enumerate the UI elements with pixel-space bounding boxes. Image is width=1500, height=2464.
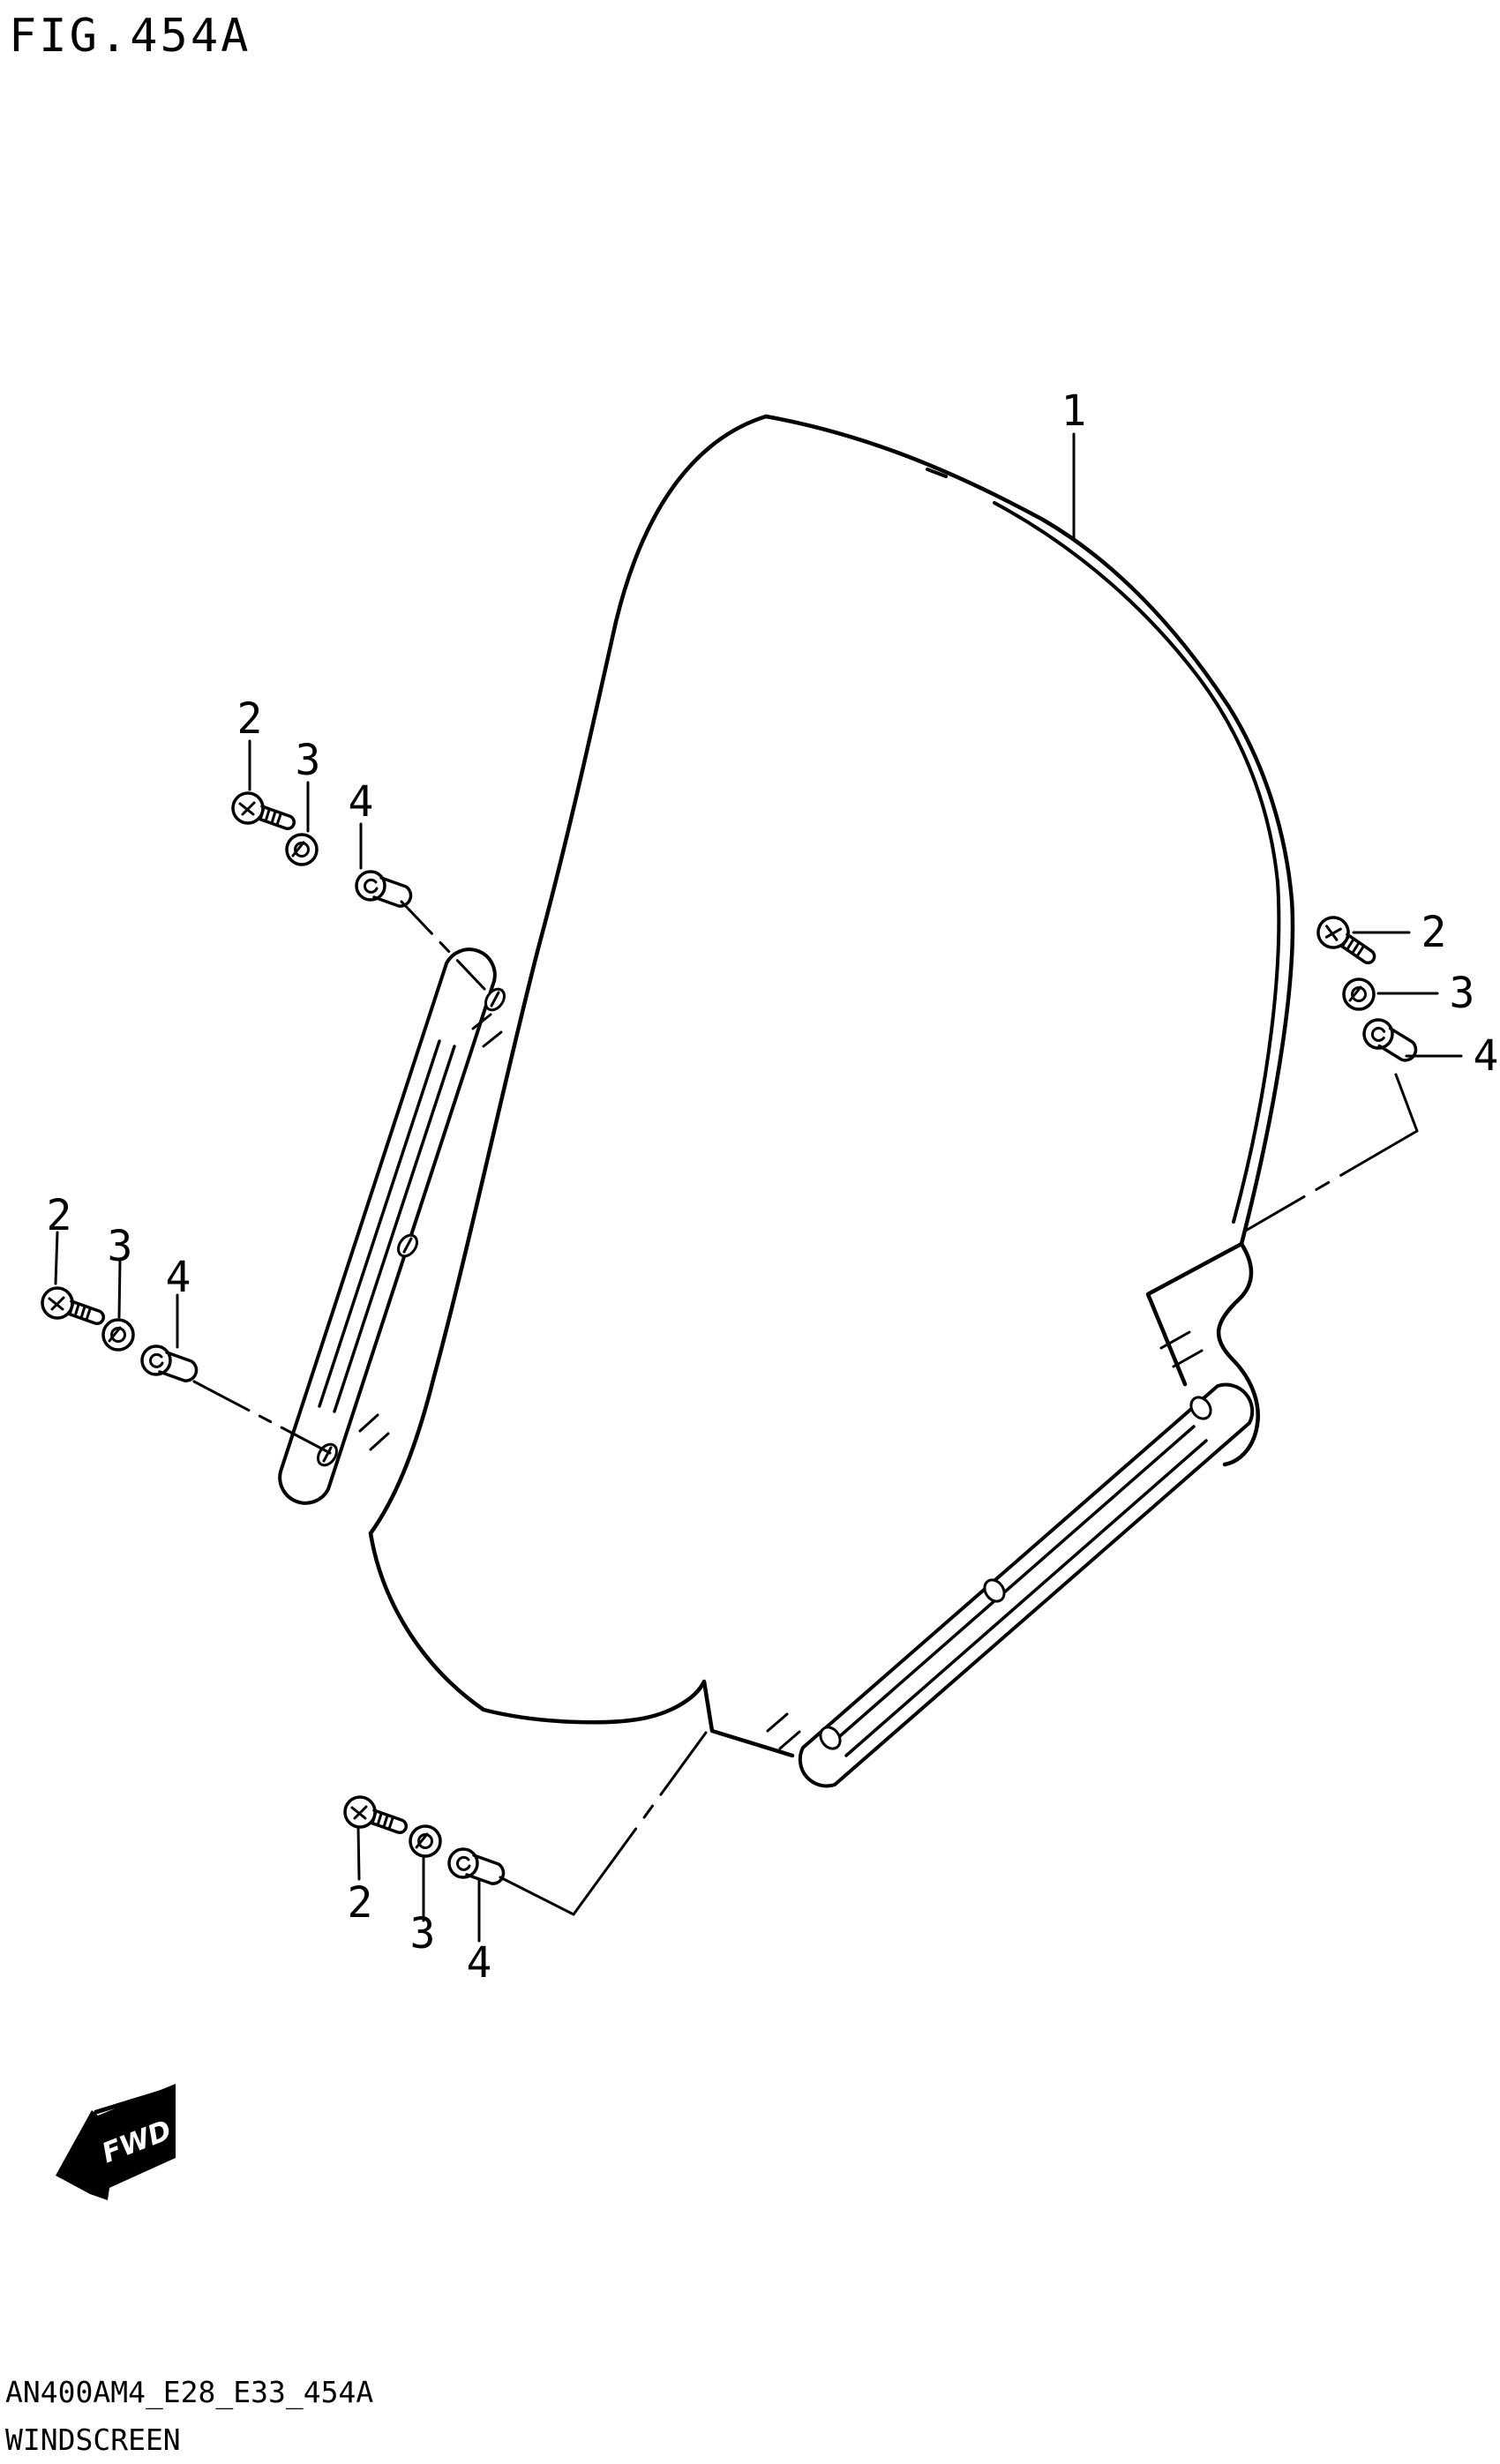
right-rail-hatches [768, 1332, 1202, 1749]
trim-line [994, 503, 1279, 1222]
right-rail-hole-middle [980, 1577, 1008, 1606]
part-label-2: 2 [1421, 908, 1447, 957]
leader-r-dashdot [1244, 1131, 1417, 1232]
part-label-2: 2 [237, 694, 263, 744]
part-label-3: 3 [1450, 969, 1475, 1018]
leader-r-elbow [1396, 1075, 1417, 1131]
right-rail-outline [800, 1385, 1252, 1786]
leader-lines [56, 434, 1461, 1941]
right-rail-hole-top [1187, 1394, 1214, 1423]
screw-icon [42, 1288, 103, 1323]
left-mounting-rail [280, 949, 508, 1503]
fastener-group-top-left [233, 793, 411, 906]
right-rail-hole-bottom [816, 1724, 844, 1753]
leader-b-dashdot [574, 1733, 706, 1914]
screw-icon [233, 793, 294, 828]
washer-icon [287, 835, 317, 865]
screw-icon [1314, 914, 1382, 964]
right-rail-slot [834, 1427, 1206, 1756]
screw-icon [345, 1797, 406, 1832]
part-label-2: 2 [47, 1191, 72, 1240]
part-label-3: 3 [108, 1222, 133, 1271]
leader-b-elbow [500, 1877, 574, 1914]
spacer-icon [142, 1346, 197, 1381]
left-rail-slot [319, 1041, 454, 1412]
parts-diagram: 1234234234234 FWD FIG.454A AN400AM4_E28_… [0, 0, 1500, 2464]
washer-icon [410, 1826, 440, 1856]
right-mounting-rail [768, 1332, 1252, 1786]
washer-icon [1344, 979, 1374, 1009]
leader-ml-dashdot [194, 1382, 330, 1453]
fastener-group-right [1314, 914, 1421, 1062]
part-label-3: 3 [410, 1909, 436, 1958]
spacer-icon [449, 1849, 504, 1884]
windscreen-left-bottom-edge [371, 416, 792, 1756]
washer-icon [103, 1320, 133, 1350]
windscreen-outline [371, 416, 1293, 1756]
windscreen-top-right-edge [766, 416, 1293, 1244]
fwd-arrow: FWD [56, 2084, 176, 2200]
footer-part-name: WINDSCREEN [5, 2423, 181, 2457]
left-rail-outline [280, 949, 495, 1503]
figure-title: FIG.454A [9, 10, 251, 63]
part-label-4: 4 [166, 1253, 191, 1302]
leader-b-2 [358, 1828, 359, 1879]
left-rail-hole-middle [394, 1232, 421, 1260]
footer-code: AN400AM4_E28_E33_454A [5, 2375, 373, 2410]
part-label-4: 4 [1474, 1031, 1499, 1081]
part-label-3: 3 [296, 736, 321, 785]
part-label-1: 1 [1061, 386, 1087, 436]
part-label-4: 4 [349, 777, 374, 827]
part-label-4: 4 [467, 1938, 492, 1988]
part-label-2: 2 [348, 1878, 373, 1928]
